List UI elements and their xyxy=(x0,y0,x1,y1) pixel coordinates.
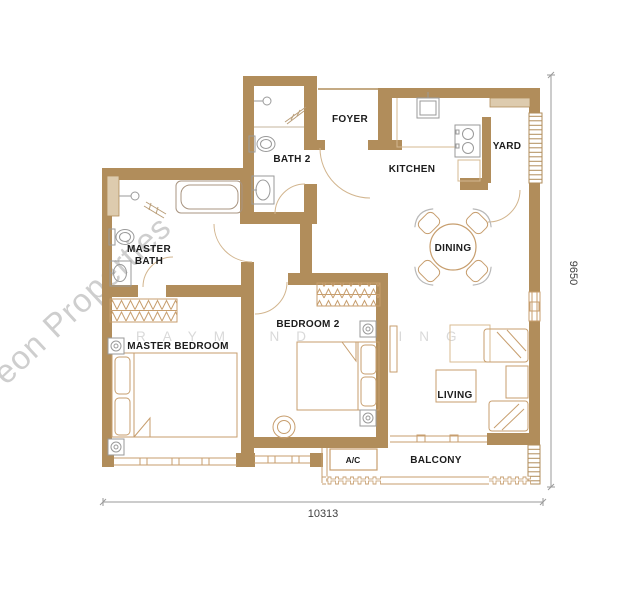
fan-coil-icon xyxy=(360,321,376,337)
fan-coil-icon xyxy=(108,338,124,354)
fan-coil-icon xyxy=(108,439,124,455)
balcony-railing xyxy=(489,477,533,485)
vanity-sink-icon xyxy=(252,176,274,204)
fan-coil-icon xyxy=(360,410,376,426)
bath2-fixtures xyxy=(249,97,306,204)
dimension-height-label: 9650 xyxy=(567,261,579,285)
yard-louver-vent xyxy=(529,113,542,183)
room-label-kitchen: KITCHEN xyxy=(389,164,436,175)
room-label-yard: YARD xyxy=(493,141,522,152)
watermark-name-right: LING xyxy=(374,329,474,344)
bedroom2-door-arc xyxy=(255,282,287,314)
side-table xyxy=(506,366,528,398)
dimension-bottom xyxy=(100,498,546,506)
floor-plan-page: eon Properties RAYMOND LING xyxy=(0,0,630,600)
right-wall-window xyxy=(529,292,540,321)
yard-sill-panel xyxy=(490,98,530,107)
room-label-dining: DINING xyxy=(435,243,472,254)
room-label-master-bedroom: MASTER BEDROOM xyxy=(127,341,228,352)
sofa xyxy=(484,329,528,431)
room-label-master-bath-2: BATH xyxy=(135,256,163,267)
oven-cabinet xyxy=(458,160,480,181)
bathtub-icon xyxy=(176,181,242,213)
living-furniture xyxy=(436,325,528,431)
room-label-bath2: BATH 2 xyxy=(273,154,310,165)
room-label-living: LIVING xyxy=(437,390,472,401)
dimension-width-label: 10313 xyxy=(308,508,339,520)
bath2-door-arc xyxy=(275,184,305,214)
balcony-railing xyxy=(326,477,383,485)
room-label-bedroom2: BEDROOM 2 xyxy=(276,319,339,330)
kitchen-door-arc xyxy=(320,148,370,198)
bedroom2-window xyxy=(254,456,310,463)
floor-plan-drawing: eon Properties RAYMOND LING xyxy=(0,0,630,600)
dimension-right xyxy=(547,72,555,490)
shower-screen-icon xyxy=(285,107,306,124)
room-label-foyer: FOYER xyxy=(332,114,368,125)
yard-door-arc xyxy=(488,190,520,222)
counter-edge xyxy=(397,98,455,147)
master-bath-door-arc xyxy=(214,224,252,262)
shower-head-icon xyxy=(119,192,139,200)
room-label-balcony: BALCONY xyxy=(410,455,462,466)
room-label-master-bath-1: MASTER xyxy=(127,244,171,255)
balcony-structure xyxy=(322,448,533,485)
room-label-ac: A/C xyxy=(346,455,361,465)
chair-icon xyxy=(273,416,295,438)
master-bedroom-window xyxy=(114,458,237,465)
living-balcony-window xyxy=(390,435,487,442)
shower-head-icon xyxy=(254,97,271,105)
bed xyxy=(297,342,379,410)
master-bedroom-furniture xyxy=(108,299,237,455)
stove-icon xyxy=(455,125,480,157)
master-bath-shaft-panel xyxy=(107,176,119,216)
walls xyxy=(102,76,540,467)
bed xyxy=(112,353,237,437)
